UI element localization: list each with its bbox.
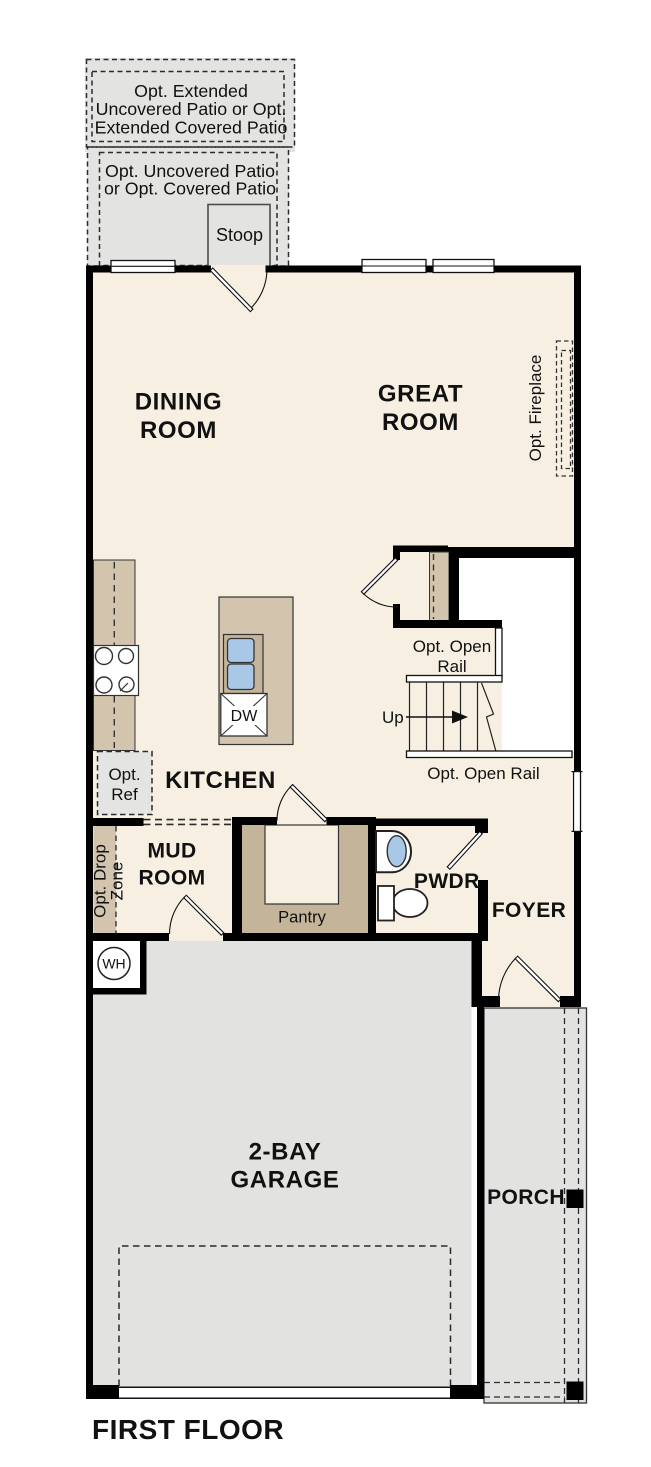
svg-text:Opt.: Opt.	[108, 765, 140, 784]
svg-text:Rail: Rail	[437, 657, 466, 676]
svg-text:PWDR: PWDR	[414, 870, 480, 893]
svg-text:KITCHEN: KITCHEN	[165, 767, 276, 794]
svg-text:Opt. Extended: Opt. Extended	[134, 81, 248, 101]
svg-text:2-BAY: 2-BAY	[249, 1139, 322, 1166]
svg-text:ROOM: ROOM	[140, 417, 217, 444]
svg-text:ROOM: ROOM	[139, 867, 206, 890]
svg-text:GARAGE: GARAGE	[231, 1167, 340, 1194]
svg-text:Uncovered Patio or Opt.: Uncovered Patio or Opt.	[96, 99, 287, 119]
svg-text:FIRST FLOOR: FIRST FLOOR	[92, 1414, 284, 1445]
svg-text:GREAT: GREAT	[378, 381, 463, 408]
svg-text:or Opt. Covered Patio: or Opt. Covered Patio	[104, 178, 276, 198]
svg-text:Opt. Open: Opt. Open	[413, 637, 491, 656]
svg-text:DW: DW	[231, 708, 259, 725]
svg-text:Opt. Fireplace: Opt. Fireplace	[526, 355, 545, 462]
svg-text:PORCH: PORCH	[487, 1186, 565, 1209]
svg-text:Opt. Open Rail: Opt. Open Rail	[427, 764, 539, 783]
svg-text:FOYER: FOYER	[492, 899, 566, 922]
svg-text:Pantry: Pantry	[278, 909, 326, 927]
svg-text:ROOM: ROOM	[382, 409, 459, 436]
svg-text:Ref: Ref	[111, 785, 138, 804]
svg-text:Extended Covered Patio: Extended Covered Patio	[95, 117, 288, 137]
svg-text:Stoop: Stoop	[216, 225, 263, 245]
svg-text:MUD: MUD	[147, 840, 196, 863]
svg-text:WH: WH	[102, 956, 125, 972]
svg-text:Zone: Zone	[108, 862, 127, 901]
svg-text:Up: Up	[382, 708, 404, 727]
svg-text:DINING: DINING	[135, 389, 223, 416]
